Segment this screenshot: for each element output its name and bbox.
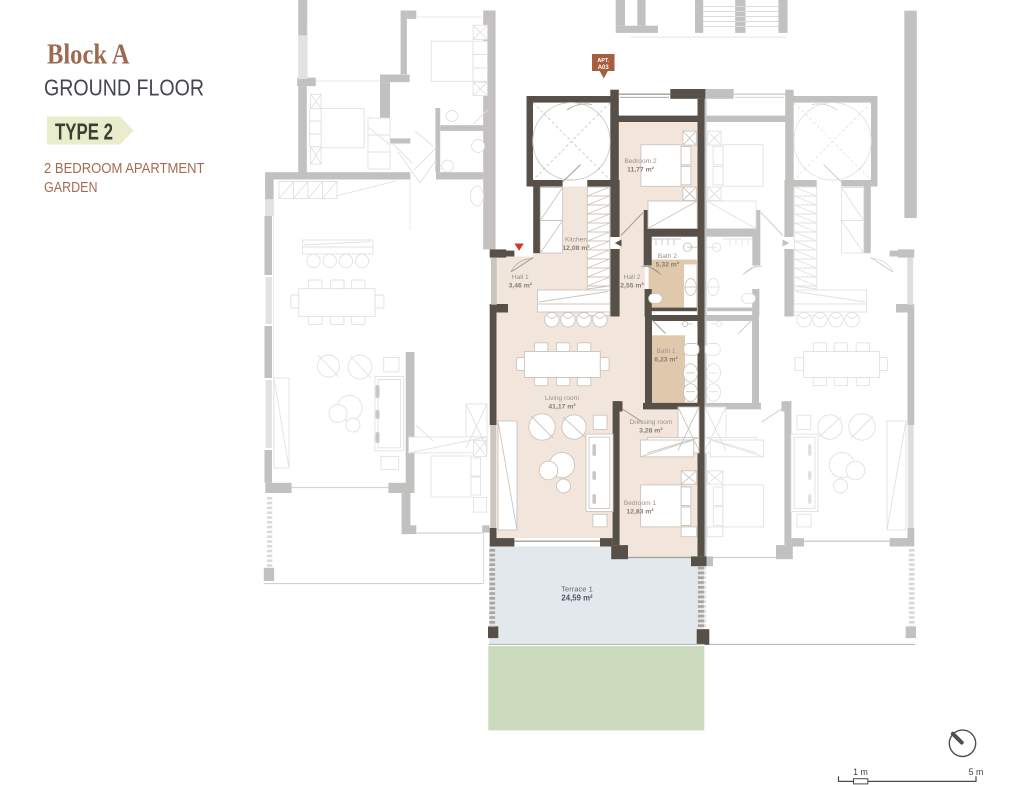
svg-text:2,55 m²: 2,55 m² — [620, 283, 644, 290]
svg-text:Hall 2: Hall 2 — [624, 274, 641, 281]
svg-text:41,17 m²: 41,17 m² — [548, 404, 576, 411]
svg-text:GARDEN: GARDEN — [44, 179, 98, 196]
svg-text:2 BEDROOM APARTMENT: 2 BEDROOM APARTMENT — [44, 160, 205, 177]
svg-text:GROUND FLOOR: GROUND FLOOR — [44, 75, 204, 101]
svg-text:TYPE 2: TYPE 2 — [55, 119, 113, 145]
svg-text:11,77 m²: 11,77 m² — [627, 167, 655, 174]
svg-text:Kitchen: Kitchen — [565, 237, 587, 244]
svg-text:12,08 m²: 12,08 m² — [562, 245, 590, 252]
svg-text:Terrace 1: Terrace 1 — [561, 584, 593, 593]
svg-text:A03: A03 — [598, 65, 610, 71]
svg-text:Block A: Block A — [47, 39, 130, 71]
svg-text:APT.: APT. — [597, 58, 609, 64]
svg-text:6,23 m²: 6,23 m² — [654, 357, 678, 364]
svg-text:Bedroom 1: Bedroom 1 — [624, 500, 657, 507]
svg-text:Dressing room: Dressing room — [629, 419, 672, 426]
svg-text:1 m: 1 m — [853, 767, 868, 777]
svg-text:Hall 1: Hall 1 — [512, 274, 529, 281]
svg-text:12,83 m²: 12,83 m² — [626, 509, 654, 516]
svg-text:3,28 m²: 3,28 m² — [639, 427, 663, 434]
svg-text:5,32 m²: 5,32 m² — [656, 262, 680, 269]
svg-text:Bedroom 2: Bedroom 2 — [624, 158, 657, 165]
svg-text:Bath 1: Bath 1 — [656, 348, 675, 355]
svg-text:Bath 2: Bath 2 — [658, 253, 677, 260]
svg-text:Living room: Living room — [545, 395, 580, 402]
svg-text:3,46 m²: 3,46 m² — [509, 283, 533, 290]
svg-text:24,59 m²: 24,59 m² — [561, 594, 593, 603]
svg-text:5 m: 5 m — [969, 767, 984, 777]
